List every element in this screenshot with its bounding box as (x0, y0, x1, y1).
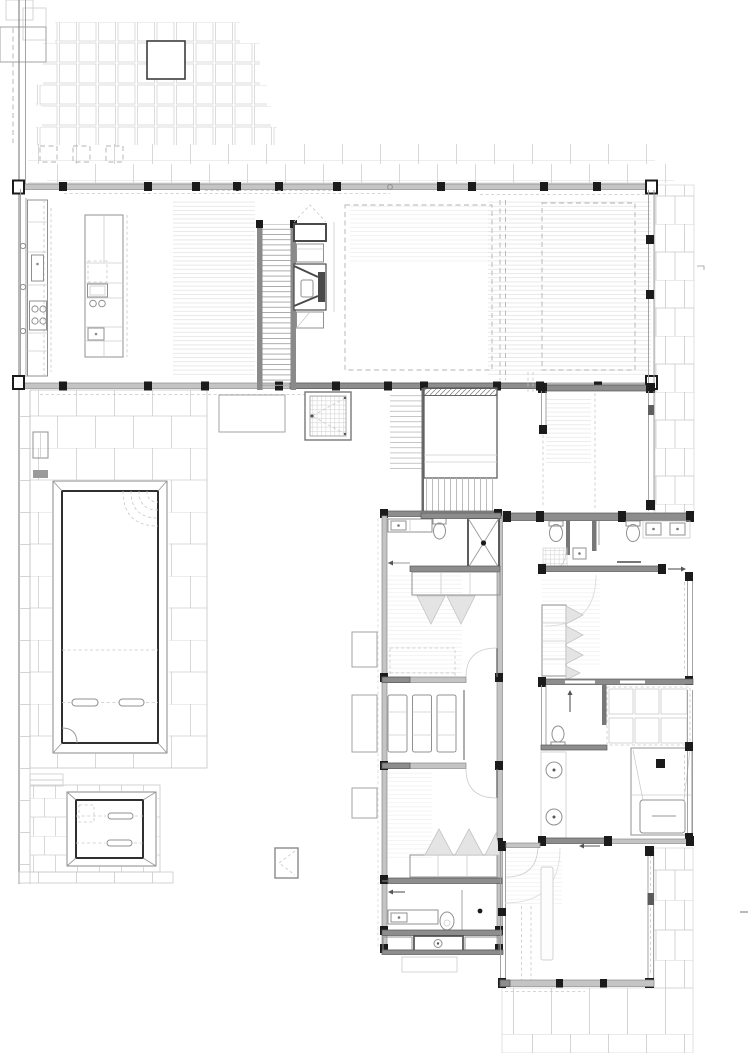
service-box (275, 848, 298, 878)
toilet-fixture (440, 912, 454, 930)
bathtub-fixture (631, 748, 692, 835)
spa-pool (66, 791, 157, 867)
west-boundary-wall (13, 0, 30, 884)
floorplan-sheet (0, 0, 750, 1053)
east-brick-band-south (654, 848, 693, 988)
terrace-planter (147, 41, 185, 79)
entry-steps (0, 0, 46, 62)
shower1 (468, 518, 499, 568)
side-tables (352, 632, 377, 818)
east-brick-band (655, 185, 694, 513)
kitchen-west-wall (20, 189, 26, 384)
toilet-fixture (626, 521, 640, 526)
swimming-pool (52, 480, 169, 754)
kitchen-counter (28, 200, 52, 376)
floorplan-drawing (0, 0, 750, 1053)
survey-ticks (697, 266, 748, 912)
main-bathroom (538, 521, 690, 574)
rug (541, 867, 553, 960)
toilet-fixture (552, 726, 564, 742)
mid-cross-wall (421, 511, 694, 522)
toilet-fixture (549, 521, 563, 526)
rooflight-box (305, 392, 351, 440)
garden-bed (219, 395, 285, 432)
wc-and-closet (541, 685, 690, 750)
kitchen-island (85, 215, 127, 357)
main-staircase (256, 220, 297, 390)
corridor-dashes (522, 906, 532, 982)
north-tile-band (28, 144, 674, 183)
ensuite1 (388, 518, 500, 572)
stairwell-down (390, 372, 533, 516)
ensuite2 (382, 890, 503, 973)
fireplace-joinery (294, 205, 334, 328)
sun-loungers (383, 683, 464, 763)
se-patio-paving (502, 988, 693, 1053)
